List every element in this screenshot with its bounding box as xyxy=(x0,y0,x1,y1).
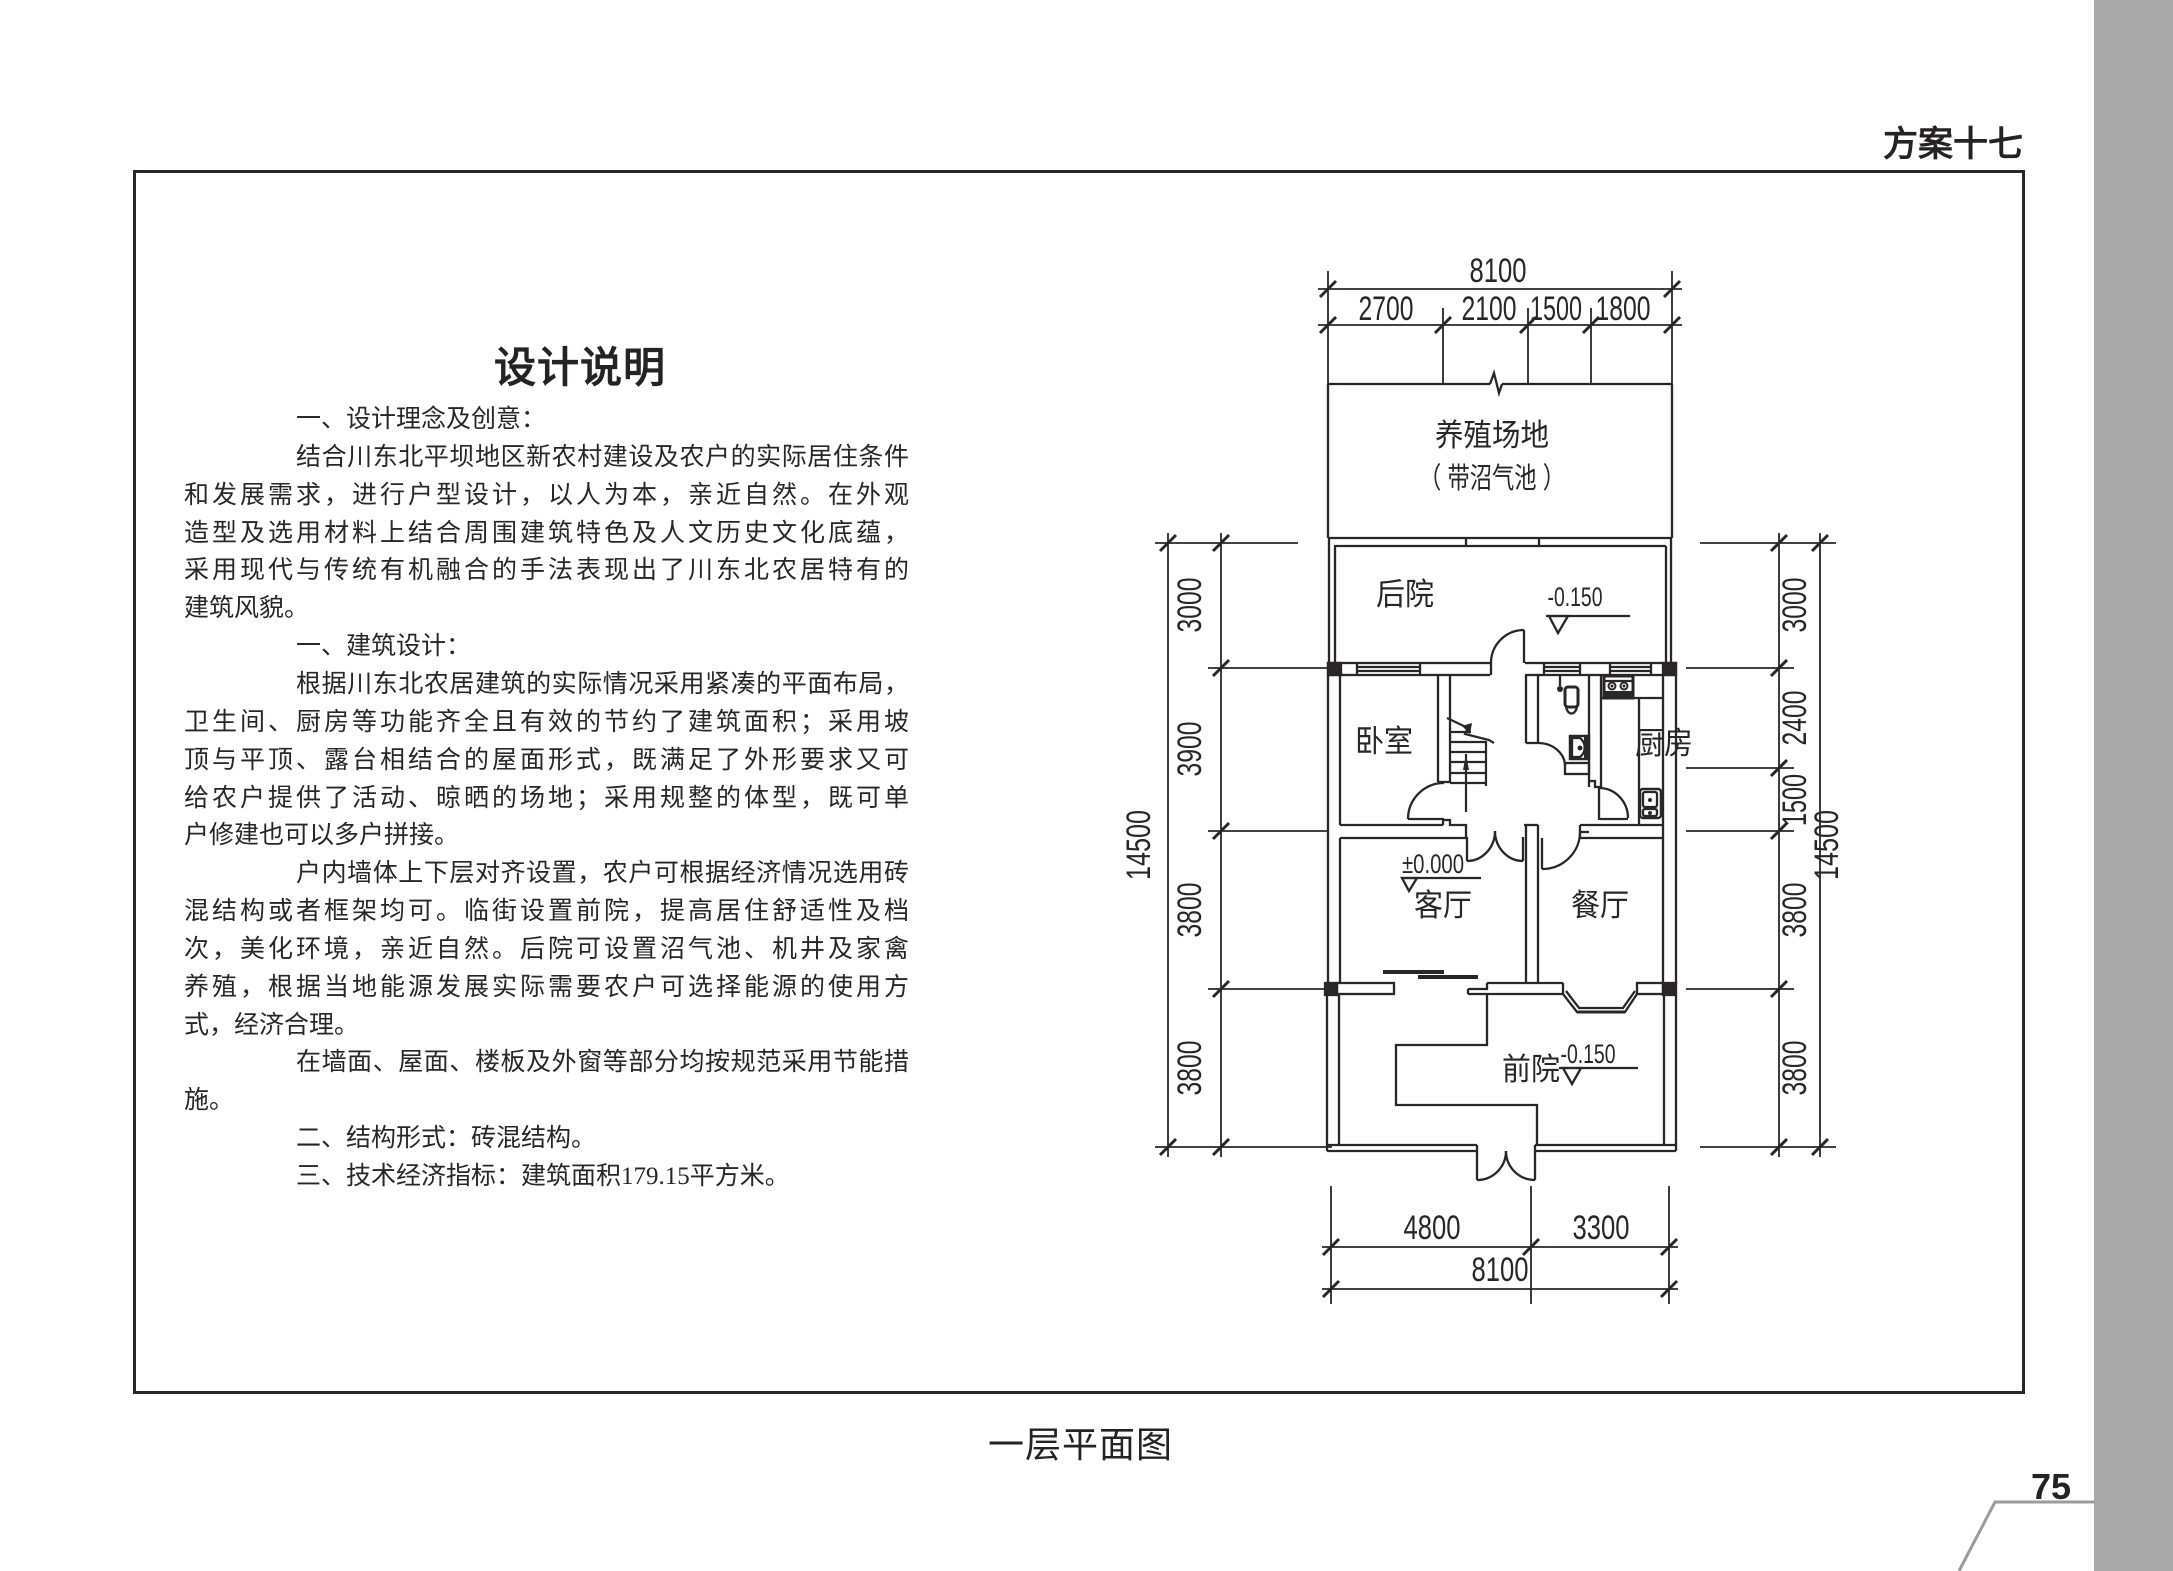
svg-text:4800: 4800 xyxy=(1404,1209,1461,1247)
svg-text:后院: 后院 xyxy=(1376,577,1434,612)
svg-text:前院: 前院 xyxy=(1502,1052,1560,1087)
svg-text:卧室: 卧室 xyxy=(1355,724,1413,759)
svg-text:14500: 14500 xyxy=(1808,810,1846,880)
svg-text:2700: 2700 xyxy=(1359,290,1414,328)
svg-text:3800: 3800 xyxy=(1171,883,1209,938)
svg-text:2100: 2100 xyxy=(1462,290,1517,328)
svg-text:养殖场地: 养殖场地 xyxy=(1435,418,1549,453)
svg-text:3300: 3300 xyxy=(1573,1209,1630,1247)
svg-text:3800: 3800 xyxy=(1171,1041,1209,1096)
svg-text:3800: 3800 xyxy=(1776,1041,1814,1096)
svg-text:2400: 2400 xyxy=(1776,691,1814,746)
svg-text:14500: 14500 xyxy=(1120,810,1158,880)
svg-text:1800: 1800 xyxy=(1596,290,1651,328)
svg-text:-0.150: -0.150 xyxy=(1548,582,1603,612)
svg-text:客厅: 客厅 xyxy=(1414,888,1472,923)
svg-text:±0.000: ±0.000 xyxy=(1402,849,1464,879)
svg-text:（ 带沼气池 ）: （ 带沼气池 ） xyxy=(1419,462,1565,495)
svg-text:8100: 8100 xyxy=(1470,252,1527,290)
svg-text:1500: 1500 xyxy=(1530,290,1582,328)
svg-text:餐厅: 餐厅 xyxy=(1571,888,1629,923)
svg-text:3800: 3800 xyxy=(1776,883,1814,938)
svg-text:8100: 8100 xyxy=(1472,1251,1529,1289)
svg-text:-0.150: -0.150 xyxy=(1561,1039,1616,1069)
svg-text:厨房: 厨房 xyxy=(1635,726,1693,761)
svg-text:3000: 3000 xyxy=(1776,578,1814,633)
svg-text:3000: 3000 xyxy=(1171,578,1209,633)
svg-text:3900: 3900 xyxy=(1171,722,1209,777)
